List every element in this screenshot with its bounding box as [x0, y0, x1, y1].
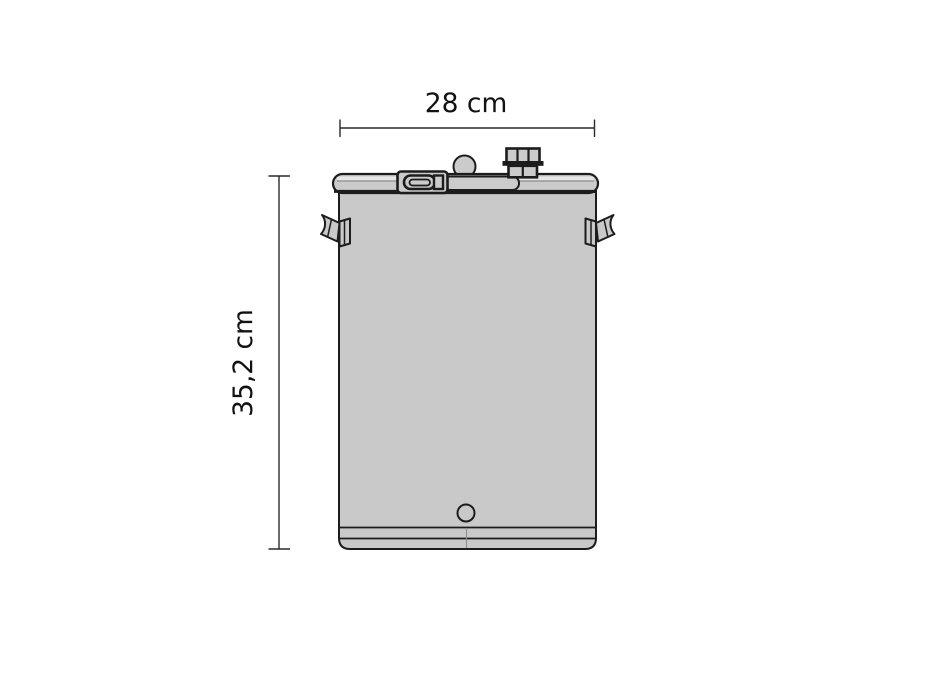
bung-cap-top: [507, 149, 540, 164]
latch-hinge-block: [434, 176, 443, 190]
left-handle: [321, 215, 350, 247]
height-dimension-label: 35,2 cm: [228, 309, 259, 417]
latch-lever-bar: [410, 180, 431, 186]
right-handle: [586, 215, 615, 247]
drawing-canvas: 28 cm 35,2 cm: [0, 0, 933, 700]
drum-lid: [333, 174, 598, 193]
width-dimension-label: 28 cm: [425, 88, 508, 119]
bung-cap: [503, 149, 544, 178]
drum-body: [339, 192, 596, 549]
drum-technical-drawing: 28 cm 35,2 cm: [0, 0, 933, 700]
drum-body-shell: [339, 192, 596, 549]
width-dimension: 28 cm: [340, 88, 595, 137]
lid-clamp-latch: [398, 172, 448, 194]
height-dimension: 35,2 cm: [228, 176, 290, 549]
